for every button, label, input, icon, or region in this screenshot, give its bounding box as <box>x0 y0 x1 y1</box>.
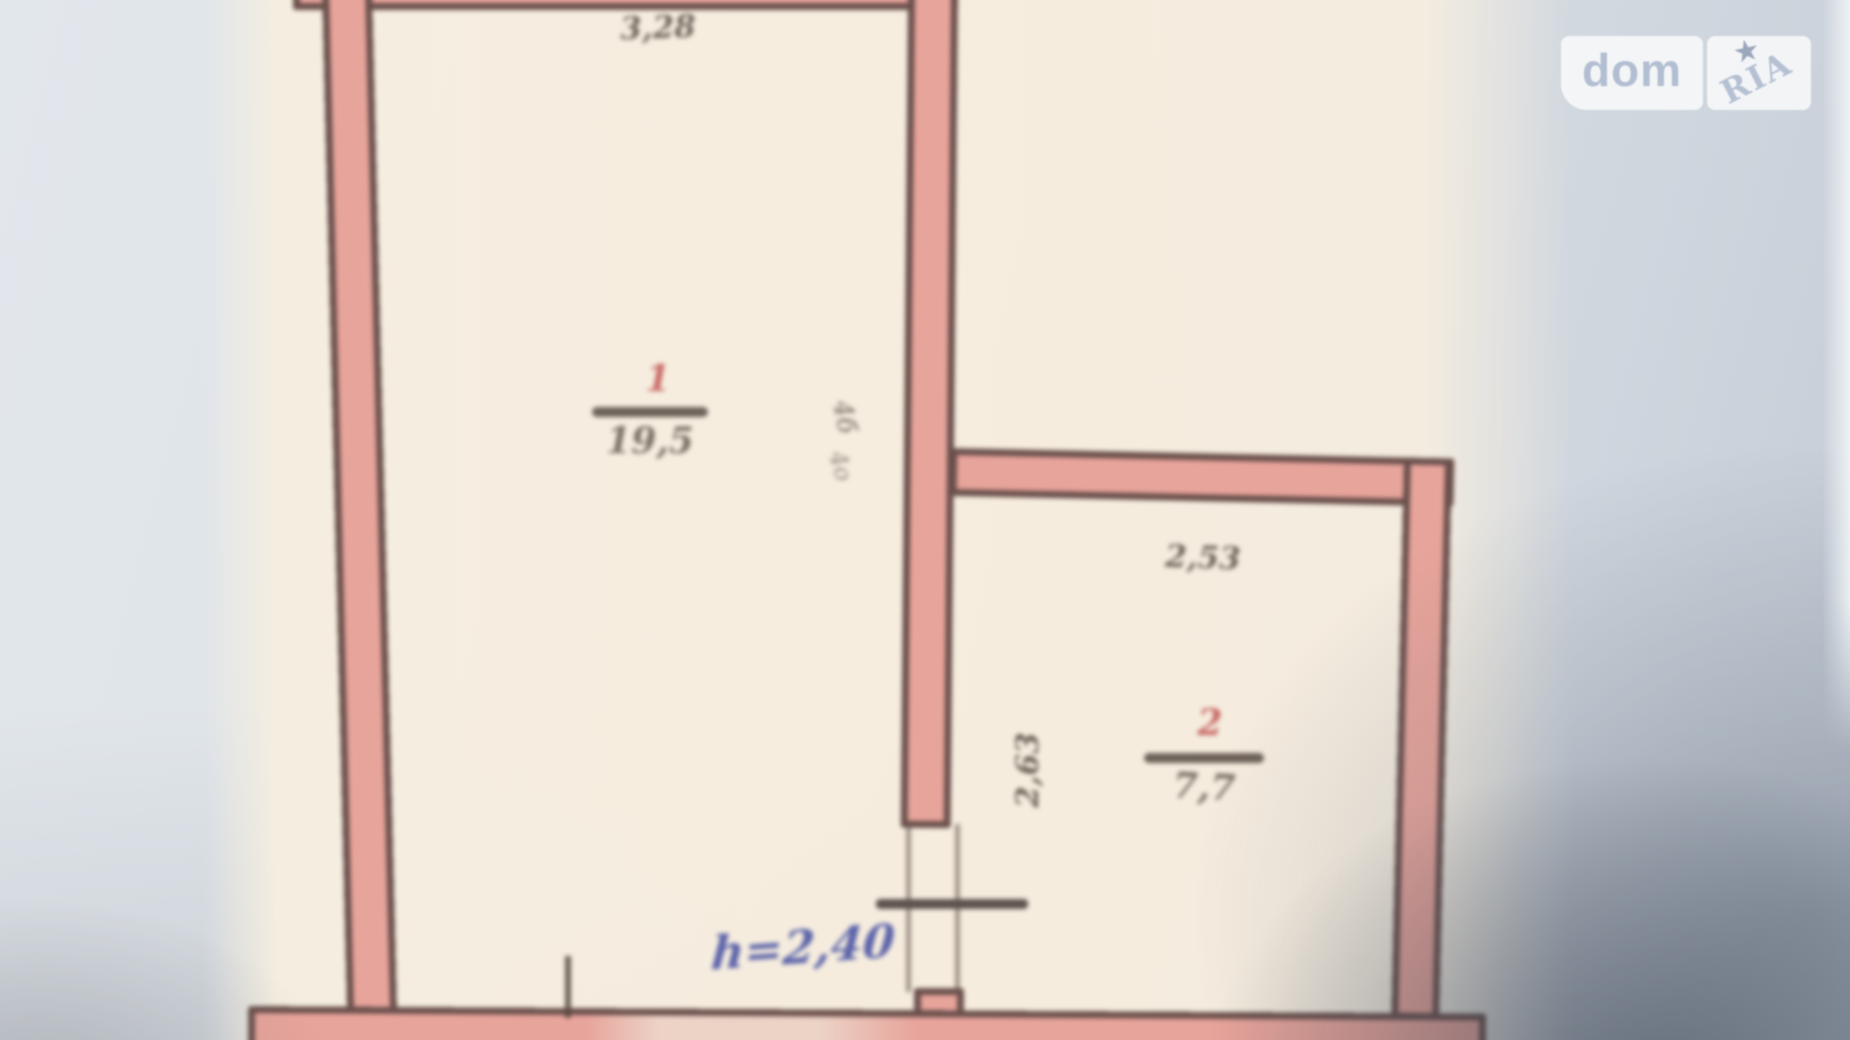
dimension-room2-width: 2,53 <box>1147 538 1258 578</box>
floorplan-photo: 1 19,5 2 7,7 3,28 2,53 2,63 h=2,40 4б 4о… <box>0 0 1850 1040</box>
room2-area: 7,7 <box>1145 763 1263 811</box>
ceiling-height-note: h=2,40 <box>686 912 919 982</box>
watermark-domria: dom ★ RIA <box>1561 36 1813 110</box>
dimension-top-width: 3,28 <box>599 8 716 48</box>
room1-area: 19,5 <box>592 420 708 462</box>
wall-annotation-lower: 4о <box>823 448 858 484</box>
wall-left <box>322 0 397 1022</box>
room1-divider-line <box>592 407 708 417</box>
dimension-room2-height: 2,63 <box>998 710 1058 830</box>
wall-room2-right <box>1391 457 1452 1020</box>
door-leaf-line <box>876 899 1028 909</box>
wall-middle-upper <box>901 0 958 828</box>
room2-number: 2 <box>1180 702 1240 744</box>
room1-number: 1 <box>628 358 688 400</box>
wall-bottom <box>248 1006 1486 1040</box>
wall-room2-top <box>949 448 1454 507</box>
watermark-dom-text: dom <box>1582 43 1682 103</box>
wall-top <box>293 0 958 10</box>
watermark-ria-box: ★ RIA <box>1707 36 1811 110</box>
dimension-room2-height-value: 2,63 <box>1010 732 1046 808</box>
watermark-dom-box: dom <box>1561 36 1703 110</box>
wall-annotation-upper: 4б <box>827 398 862 435</box>
room2-divider-line <box>1144 753 1264 763</box>
floor-plan: 1 19,5 2 7,7 3,28 2,53 2,63 h=2,40 4б 4о <box>0 0 1850 1040</box>
entry-door-mark <box>565 956 571 1018</box>
